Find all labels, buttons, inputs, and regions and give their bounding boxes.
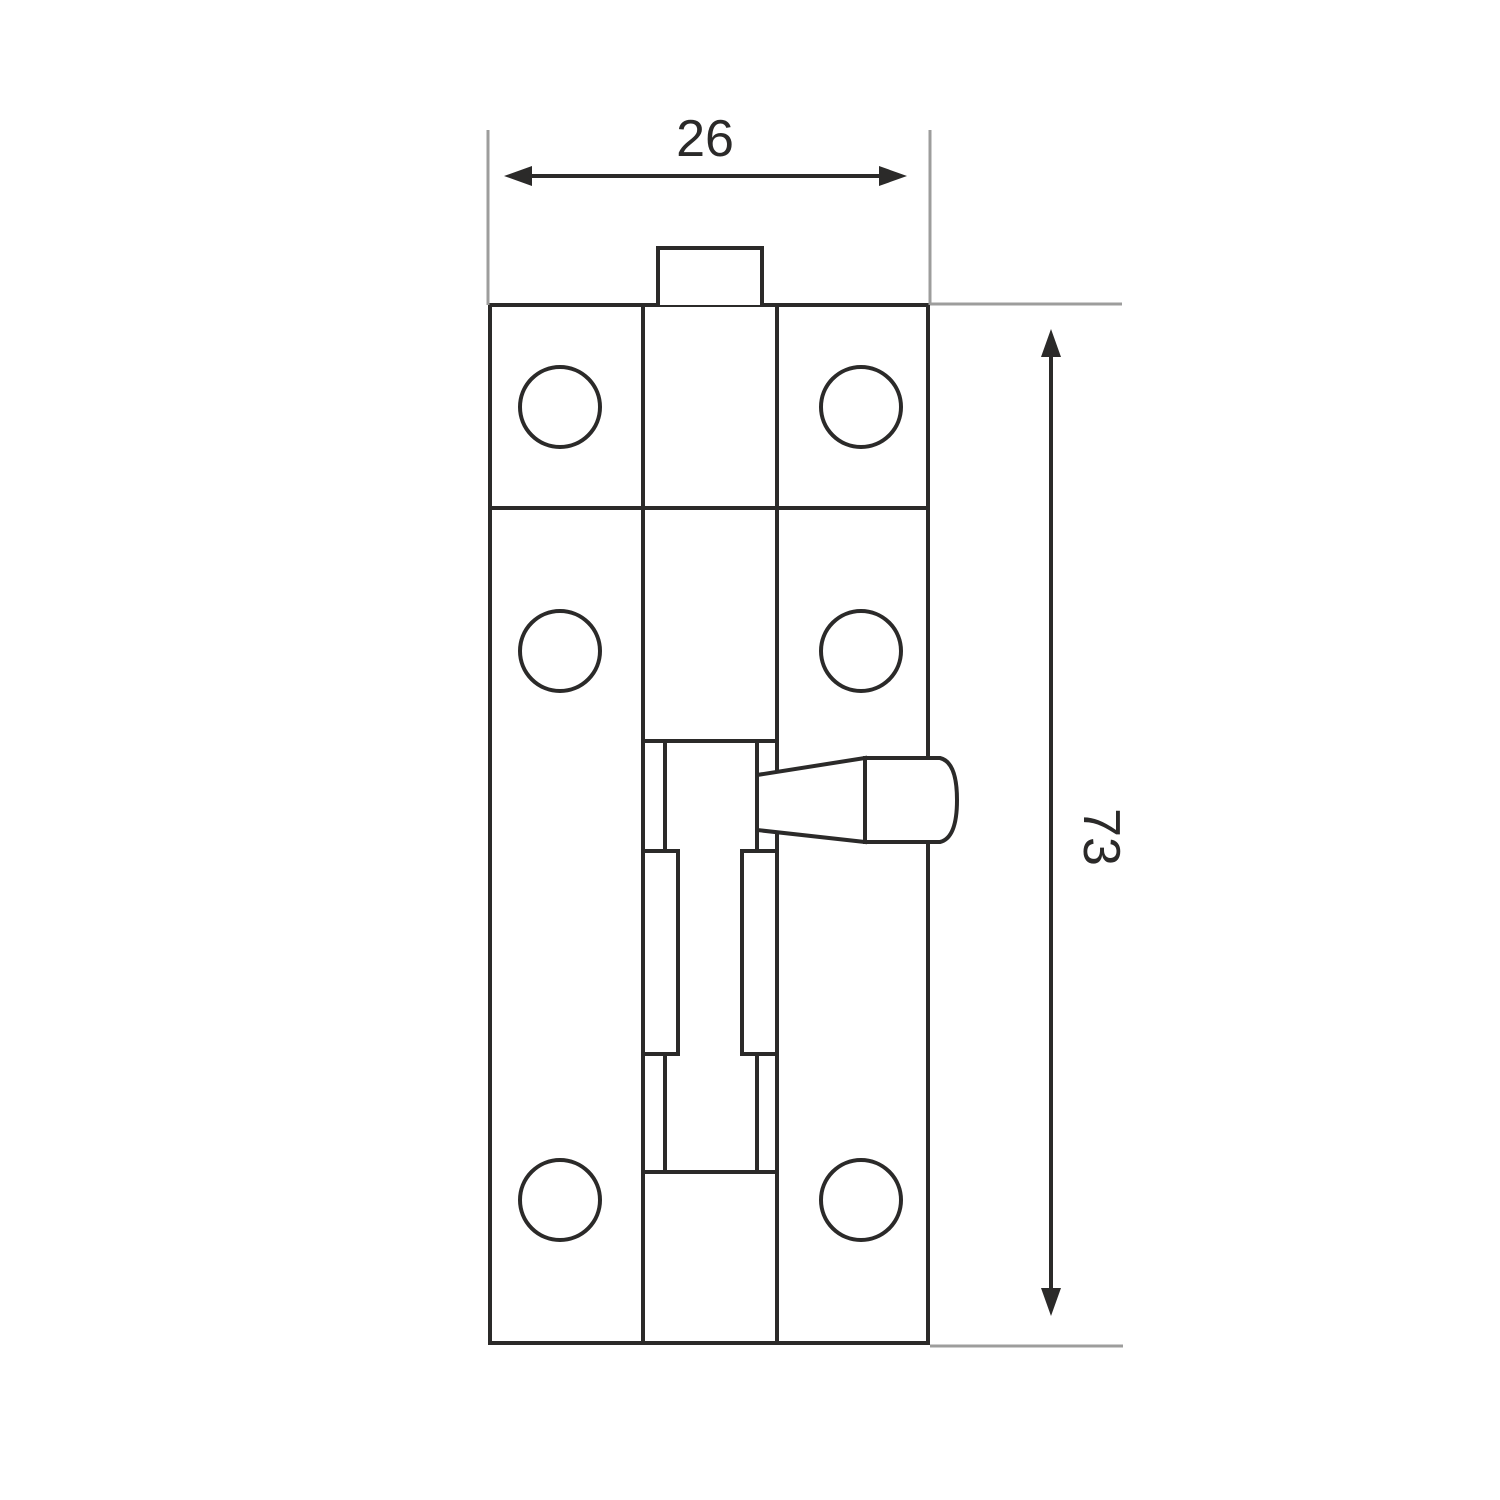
screw-hole-bottom-left	[520, 1160, 600, 1240]
bolt-guide-left	[643, 851, 678, 1054]
bolt-body	[490, 248, 957, 1343]
width-dimension-label: 26	[676, 110, 734, 168]
height-dimension-label: 73	[1072, 808, 1130, 866]
height-arrowhead-bottom	[1041, 1288, 1061, 1316]
width-arrowhead-right	[879, 166, 907, 186]
width-arrowhead-left	[504, 166, 532, 186]
height-dimension: 73	[930, 304, 1130, 1346]
knob-neck	[757, 758, 865, 842]
screw-hole-bottom-right	[821, 1160, 901, 1240]
screw-hole-middle-right	[821, 611, 901, 691]
screw-hole-top-right	[821, 367, 901, 447]
drawing-page: 26 73	[0, 0, 1500, 1500]
screw-hole-middle-left	[520, 611, 600, 691]
height-arrowhead-top	[1041, 329, 1061, 357]
bolt-guide-right	[742, 851, 777, 1054]
screw-hole-top-left	[520, 367, 600, 447]
tower-bolt-technical-drawing: 26 73	[0, 0, 1500, 1500]
bolt-tip-tab	[658, 248, 762, 305]
knob-head	[865, 758, 957, 842]
